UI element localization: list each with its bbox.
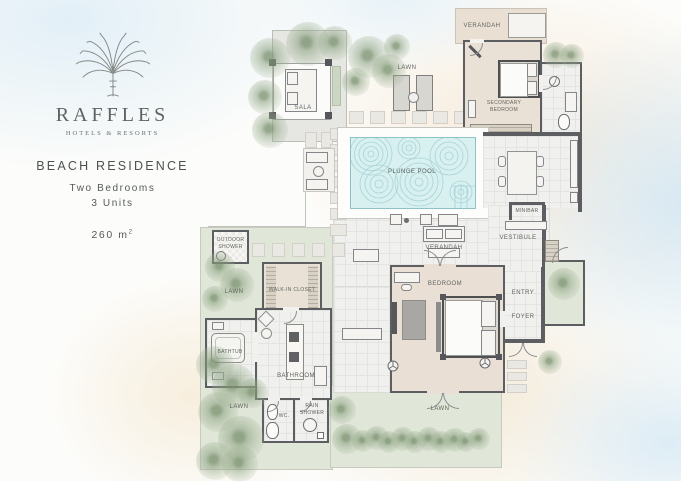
bathtub-label: BATHTUB	[214, 349, 246, 356]
outdoor-shower-label: OUTDOOR SHOWER	[215, 237, 246, 251]
fan-dot-icon	[404, 218, 409, 223]
lounge-chair	[353, 249, 379, 262]
residence-title: BEACH RESIDENCE	[20, 159, 205, 173]
bed-post	[440, 354, 446, 360]
tv-console	[392, 302, 397, 334]
desk-chair	[401, 284, 412, 291]
dining-chair	[536, 156, 544, 167]
bed-post	[440, 294, 446, 300]
bathroom-label: BATHROOM	[277, 372, 315, 380]
tree-icon	[548, 268, 580, 300]
verandah-mat	[508, 13, 546, 38]
paver	[391, 111, 406, 124]
kitchen-appliance	[570, 192, 578, 203]
verandah-living-label: VERANDAH	[424, 244, 464, 252]
lawn-bottom-left-label: LAWN	[225, 403, 253, 411]
paver	[507, 372, 527, 381]
toilet-icon	[558, 114, 570, 130]
paver	[292, 243, 305, 257]
stool	[261, 328, 272, 339]
tree-icon	[248, 80, 282, 114]
floor-plan-page: RAFFLES HOTELS & RESORTS BEACH RESIDENCE…	[0, 0, 681, 481]
tree-icon	[342, 68, 370, 96]
secondary-bedroom-label: SECONDARY BEDROOM	[478, 100, 530, 114]
wall	[483, 132, 582, 136]
vestibule-label: VESTIBULE	[498, 234, 538, 242]
master-pillow	[481, 301, 496, 327]
tree-icon	[538, 350, 562, 374]
sala-label: SALA	[288, 104, 318, 112]
wall	[578, 132, 582, 212]
paver	[412, 111, 427, 124]
bed-bench	[436, 302, 441, 352]
pool-table	[438, 214, 458, 226]
nook-chair	[306, 179, 328, 190]
tree-icon	[318, 26, 352, 60]
info-panel: RAFFLES HOTELS & RESORTS BEACH RESIDENCE…	[20, 30, 205, 241]
pool-stool	[420, 214, 432, 225]
secondary-mattress	[500, 63, 528, 97]
toilet-icon	[266, 422, 279, 439]
dining-chair	[498, 176, 506, 187]
ceiling-fan-icon	[479, 357, 491, 369]
plunge-pool-label: PLUNGE POOL	[377, 168, 447, 176]
dining-table	[507, 151, 537, 195]
master-mattress	[445, 300, 483, 356]
bed-post	[496, 294, 502, 300]
paver	[349, 111, 364, 124]
bed-post	[496, 354, 502, 360]
verandah-top-label: VERANDAH	[459, 22, 505, 30]
minibar-console	[505, 221, 547, 230]
area-value: 260 m	[91, 229, 128, 241]
dressing-table	[314, 366, 327, 386]
vanity	[565, 92, 577, 112]
lawn-top-label: LAWN	[392, 64, 422, 72]
sun-lounger	[416, 75, 433, 111]
paver	[507, 360, 527, 369]
tree-icon	[560, 44, 584, 68]
master-pillow	[481, 330, 496, 356]
dining-chair	[536, 176, 544, 187]
paver	[272, 243, 285, 257]
side-table	[212, 322, 224, 330]
tree-icon	[250, 38, 290, 78]
tree-icon	[252, 112, 288, 148]
rain-shower-head-icon	[303, 418, 317, 432]
sofa-cushion	[426, 229, 443, 239]
sink-icon	[289, 332, 299, 342]
secondary-pillow	[527, 81, 537, 95]
sala-pillow	[287, 72, 298, 85]
wc-label: WC.	[276, 413, 292, 420]
sala-post	[325, 112, 332, 119]
paver	[330, 224, 347, 236]
paver	[433, 111, 448, 124]
door-arc	[509, 343, 523, 357]
minibar-label: MINIBAR	[512, 208, 542, 215]
tree-icon	[384, 34, 410, 60]
lawn-bottom-label: LAWN	[425, 405, 455, 413]
raffles-palm-logo-icon	[65, 30, 161, 100]
nook-table	[313, 166, 324, 177]
walk-in-closet-label: WALK-IN CLOSET	[266, 287, 318, 294]
wall	[509, 202, 545, 205]
paver	[507, 384, 527, 393]
secondary-pillow	[527, 63, 537, 77]
ceiling-fan-icon	[387, 360, 399, 372]
rug	[402, 300, 426, 340]
sink-icon	[289, 352, 299, 362]
brand-name: RAFFLES	[20, 104, 205, 127]
tree-icon	[328, 396, 356, 424]
sala-post	[325, 59, 332, 66]
residence-units: 3 Units	[20, 198, 205, 209]
residence-area: 260 m2	[20, 229, 205, 241]
paver	[370, 111, 385, 124]
boundary-line-h	[208, 226, 306, 227]
door-arc	[523, 343, 537, 357]
tree-icon	[222, 446, 258, 481]
brand-tagline: HOTELS & RESORTS	[20, 130, 205, 137]
entry-label: ENTRY	[509, 289, 537, 297]
paver	[312, 243, 325, 257]
paver	[332, 243, 345, 257]
bedroom-label: BEDROOM	[427, 280, 463, 288]
wall	[542, 202, 545, 220]
nook-chair	[306, 152, 328, 163]
foyer-label: FOYER	[509, 313, 537, 321]
area-sup: 2	[129, 230, 134, 236]
garden-bench	[342, 328, 382, 340]
dining-chair	[498, 156, 506, 167]
sala-mat	[332, 66, 341, 106]
desk	[394, 272, 420, 283]
secondary-bench	[468, 100, 476, 118]
entry-foyer-floor	[503, 271, 544, 342]
rain-shower-label: RAIN SHOWER	[298, 403, 326, 417]
lawn-left-label: LAWN	[220, 288, 248, 296]
kitchen-counter	[570, 140, 578, 188]
paver	[305, 132, 317, 148]
drain	[317, 432, 324, 439]
pool-stool	[390, 214, 402, 225]
sofa-cushion	[445, 229, 462, 239]
paver	[252, 243, 265, 257]
residence-bedrooms: Two Bedrooms	[20, 183, 205, 194]
lounger-side-table	[408, 92, 419, 103]
